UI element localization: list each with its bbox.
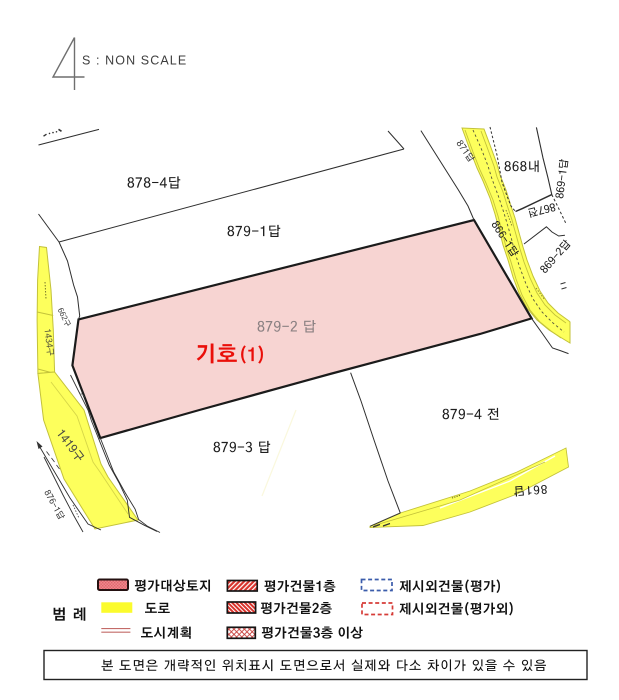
svg-text:S : NON SCALE: S : NON SCALE xyxy=(82,54,187,68)
